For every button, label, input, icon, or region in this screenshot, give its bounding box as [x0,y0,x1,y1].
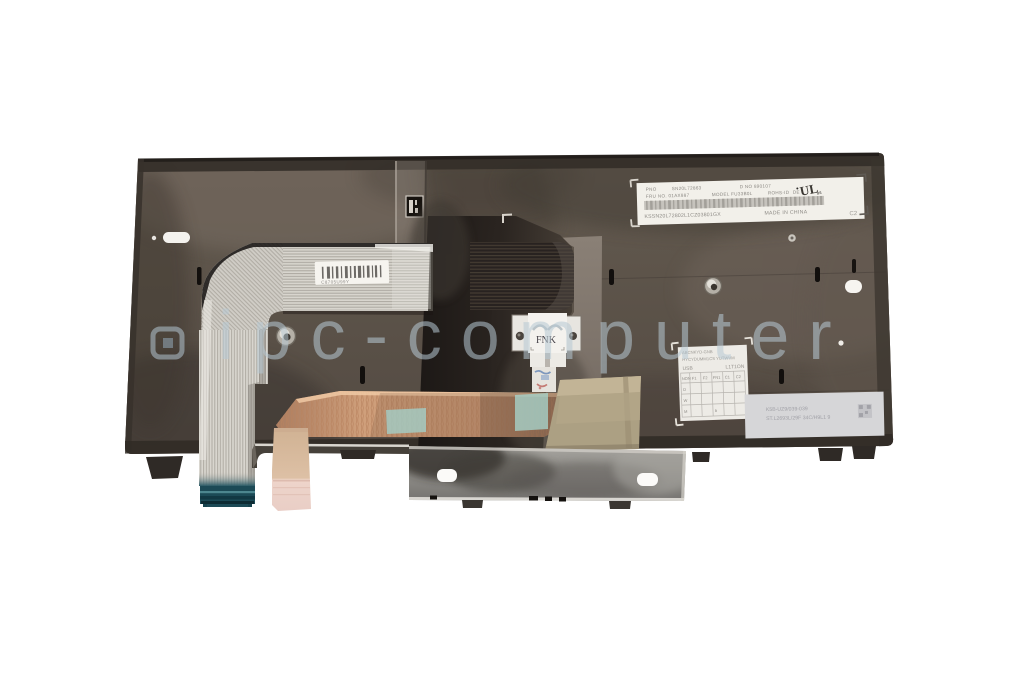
svg-text:W: W [684,398,688,403]
svg-text:ipc-computer: ipc-computer [218,296,851,374]
svg-text:FN1: FN1 [713,375,722,380]
svg-text:MADE IN CHINA: MADE IN CHINA [764,209,807,216]
svg-text:M: M [684,409,688,414]
svg-text:PNO: PNO [646,187,657,192]
svg-text:K5B-UZ9/039-039: K5B-UZ9/039-039 [766,406,808,413]
svg-text:SN20L72863: SN20L72863 [672,185,702,191]
svg-text:ROHS-ID: ROHS-ID [768,190,790,196]
svg-text:D: D [683,387,686,392]
svg-text:D NO 890107: D NO 890107 [740,183,772,189]
svg-text:NON: NON [682,376,691,381]
svg-text:C2: C2 [849,211,857,217]
svg-text:C8705U99Y: C8705U99Y [321,279,349,285]
